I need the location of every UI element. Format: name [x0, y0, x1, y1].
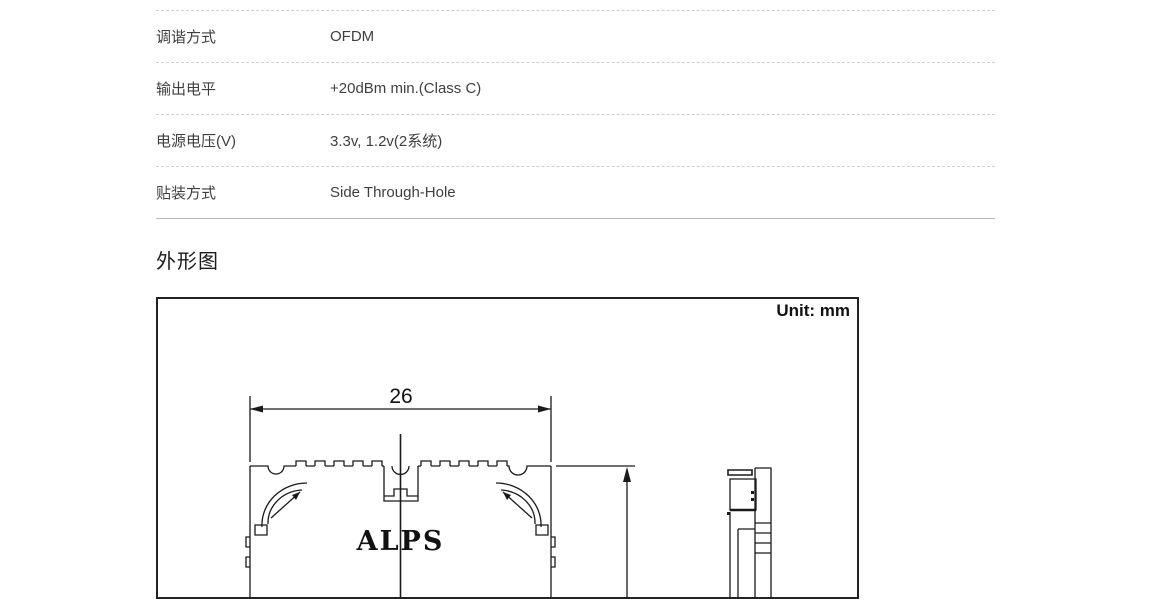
dim-arrow-right	[538, 406, 551, 413]
front-view: ALPS	[246, 434, 555, 597]
right-corner-brace	[496, 483, 548, 535]
alps-logo-text: ALPS	[356, 526, 445, 557]
spec-label: 输出电平	[156, 78, 330, 99]
spec-label: 调谐方式	[156, 26, 330, 47]
dim-arrow-left	[250, 406, 263, 413]
spec-label: 贴装方式	[156, 182, 330, 203]
spec-table: 调谐方式 OFDM 输出电平 +20dBm min.(Class C) 电源电压…	[156, 10, 995, 219]
table-row: 贴装方式 Side Through-Hole	[156, 166, 995, 218]
spec-value: Side Through-Hole	[330, 184, 995, 201]
dimension-label-26: 26	[389, 385, 412, 408]
spec-value: +20dBm min.(Class C)	[330, 80, 995, 97]
table-row: 调谐方式 OFDM	[156, 10, 995, 62]
left-corner-brace	[255, 483, 307, 535]
dim-arrow-up	[623, 467, 631, 482]
table-row: 电源电压(V) 3.3v, 1.2v(2系统)	[156, 114, 995, 166]
technical-drawing: 26	[158, 299, 857, 597]
table-row: 输出电平 +20dBm min.(Class C)	[156, 62, 995, 114]
height-dimension	[556, 466, 635, 597]
side-view	[727, 468, 771, 597]
spec-label: 电源电压(V)	[156, 130, 330, 151]
page-title: 外形图	[156, 245, 219, 274]
outline-drawing-box: Unit: mm 26	[156, 297, 859, 599]
spec-value: OFDM	[330, 28, 995, 45]
spec-value: 3.3v, 1.2v(2系统)	[330, 130, 995, 151]
